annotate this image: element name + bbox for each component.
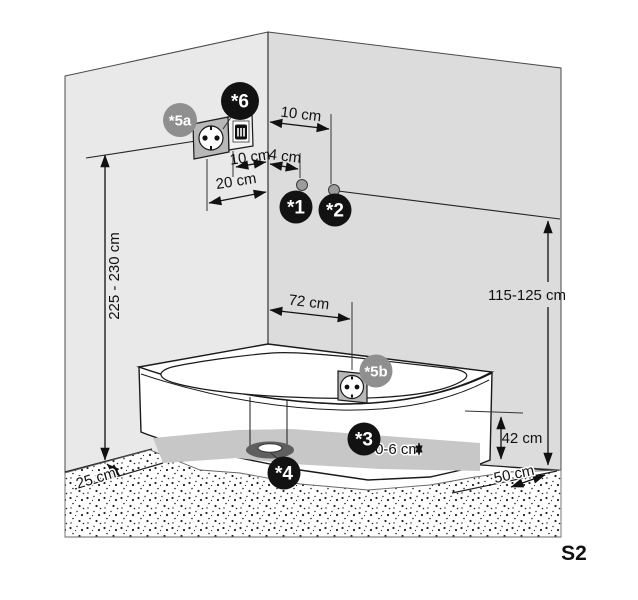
- badge-2-label: *2: [326, 201, 344, 222]
- dim-label-wall-height: 115-125 cm: [488, 287, 566, 304]
- badge-3: *3: [348, 423, 381, 456]
- diagram-canvas: 10 cm 20 cm 4 cm 10 cm 225 - 230 cm: [0, 0, 638, 600]
- sheet-code: S2: [561, 542, 587, 565]
- badge-5b-label: *5b: [364, 364, 387, 381]
- dim-label-feet-adjust: 0-6 cm: [375, 441, 421, 458]
- dim-feet-adjust: 0-6 cm: [375, 441, 421, 458]
- badge-3-label: *3: [355, 430, 373, 451]
- dim-label-socket-height: 225 - 230 cm: [106, 232, 123, 320]
- badge-2: *2: [319, 194, 352, 227]
- badge-1-label: *1: [287, 198, 305, 219]
- badge-4-label: *4: [275, 464, 293, 485]
- tub-socket-pin-left: [345, 385, 350, 390]
- badge-5a: *5a: [163, 103, 197, 137]
- mount-point-1: [297, 180, 308, 191]
- dim-label-tub-height: 42 cm: [502, 430, 543, 447]
- socket-pin-left: [202, 135, 207, 140]
- badge-6-label: *6: [231, 92, 249, 113]
- badge-5b: *5b: [360, 355, 393, 388]
- installation-diagram: 10 cm 20 cm 4 cm 10 cm 225 - 230 cm: [0, 0, 638, 600]
- badge-5a-label: *5a: [169, 113, 192, 130]
- badge-1: *1: [280, 191, 313, 224]
- drain-inner: [258, 444, 282, 452]
- tub-socket-pin-right: [355, 385, 360, 390]
- socket-pin-right: [214, 135, 219, 140]
